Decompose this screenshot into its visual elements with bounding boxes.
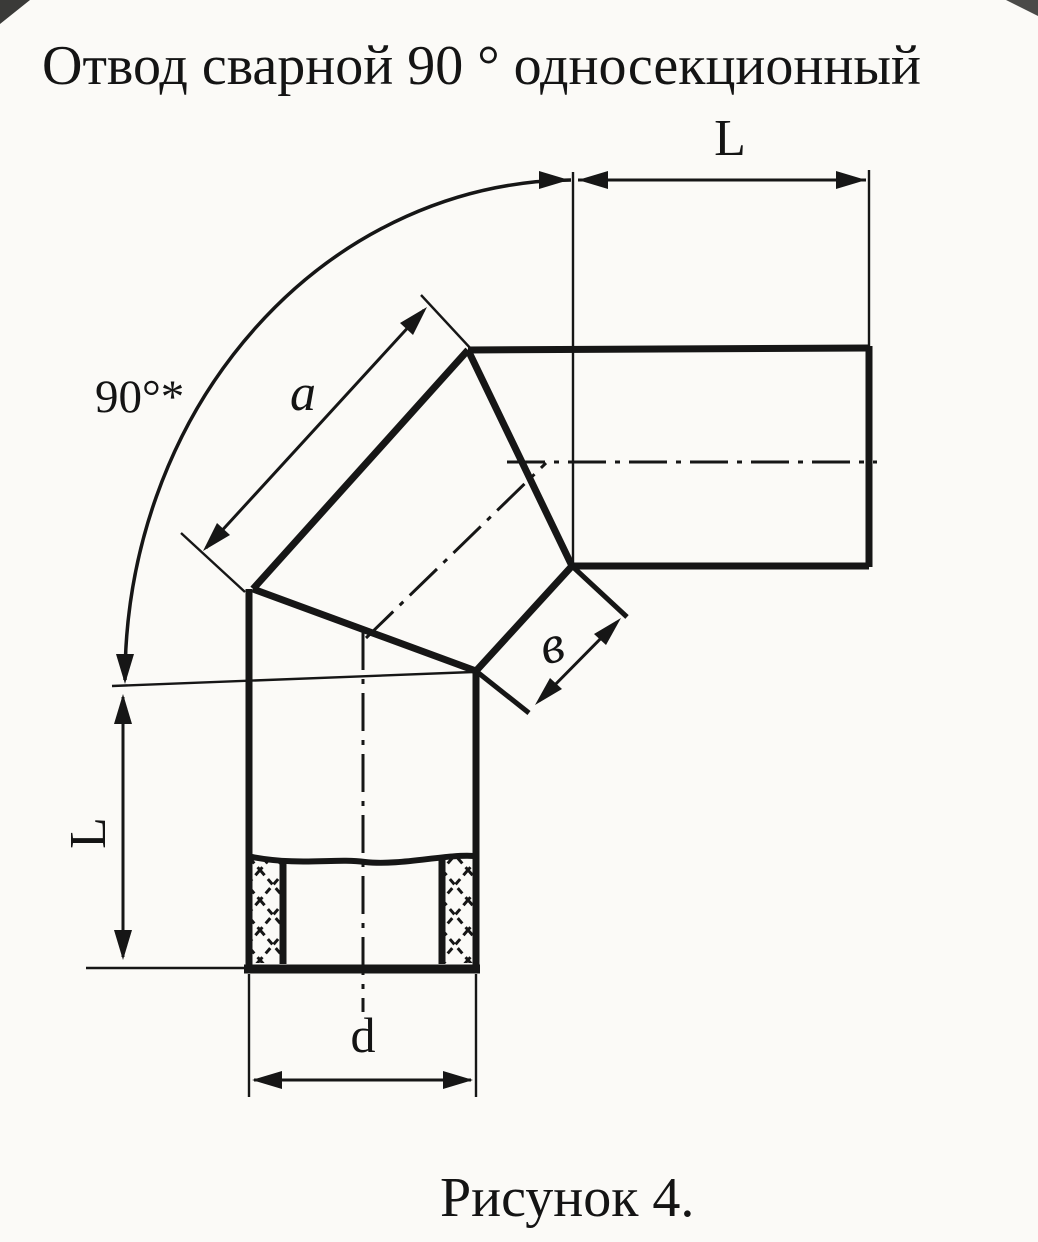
dimension-label-L-top: L [714,110,746,167]
arc-arrowhead-bottom [116,654,134,684]
extension-tick-top [421,295,472,350]
arrowhead-left [578,171,608,189]
arrowhead-left [252,1071,282,1089]
elbow-drawing-canvas: Отвод сварной 90 ° односекционный [0,0,1038,1242]
right-pipe-top-edge [468,348,869,350]
figure-caption: Рисунок 4. [440,1167,694,1229]
middle-section-centerline [366,463,546,638]
bottom-pipe [244,589,480,1012]
dimension-label-d: d [351,1007,376,1063]
arrowhead-right [443,1071,473,1089]
right-pipe [468,346,877,567]
scan-artifact-top-left [0,0,30,24]
dimension-label-L-left: L [60,817,117,849]
extension-line-upper [572,566,627,617]
angle-label: 90°* [95,371,184,423]
weld-seam-upper [468,350,572,566]
drawing-sheet: Отвод сварной 90 ° односекционный [0,0,1038,1242]
dimension-a: a [181,295,472,592]
dimension-label-b: в [533,613,570,677]
dimension-L-top: L [573,110,869,566]
sleeve-wall-hatch-right [445,857,473,963]
angle-dimension: 90°* [95,171,571,684]
scan-artifact-top-right [1006,0,1038,16]
dimension-d: d [249,974,476,1097]
dimension-label-a: a [290,365,316,422]
drawing-title: Отвод сварной 90 ° односекционный [42,35,921,97]
sleeve-wall-hatch-left [252,859,280,963]
extension-line-lower [476,671,529,713]
arrowhead-bottom [114,930,132,960]
extension-line-top [112,672,473,686]
arrowhead-right [836,171,866,189]
middle-section-outer-edge [253,350,468,589]
arrowhead-top [114,694,132,724]
arc-arrowhead-top [539,171,569,189]
